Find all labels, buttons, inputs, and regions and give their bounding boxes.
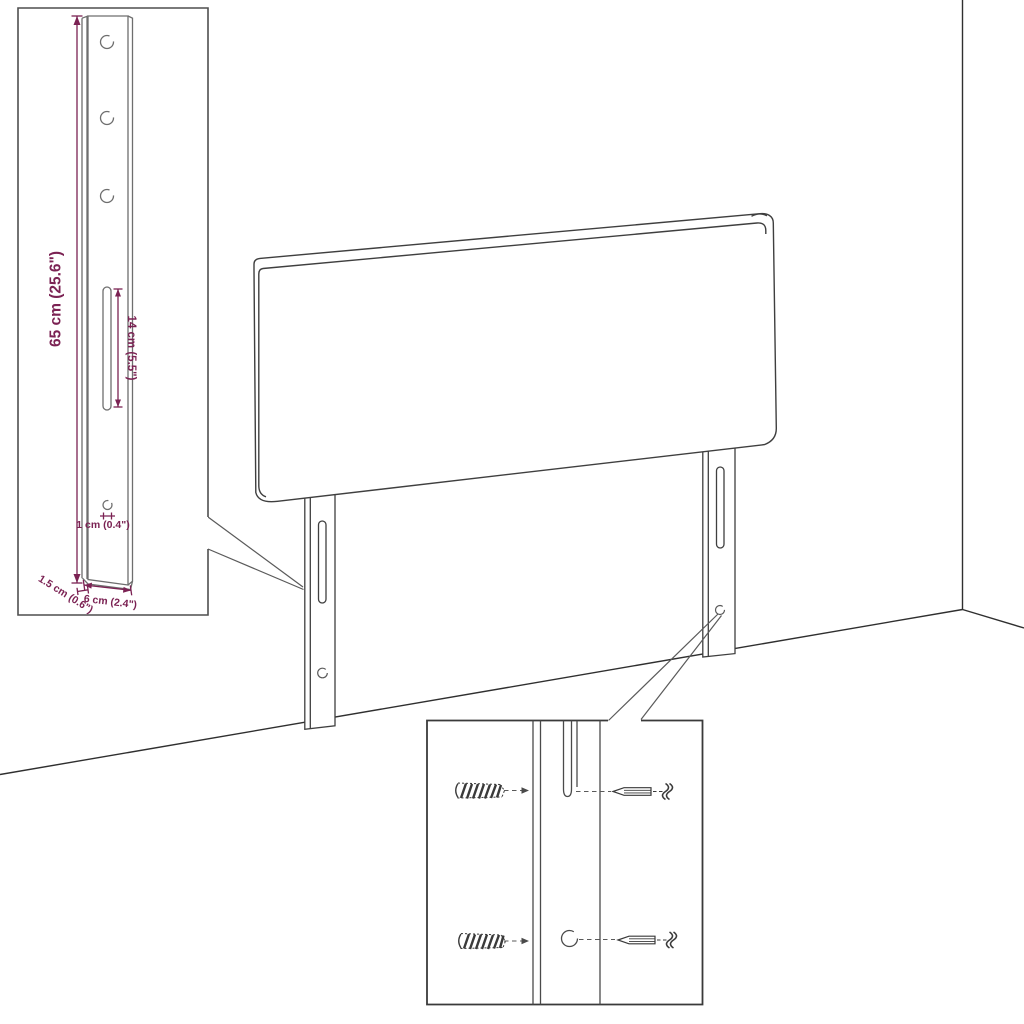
detail-box-fill [427, 721, 703, 1005]
inset-leader-lines [208, 517, 304, 590]
floor-line-right [963, 610, 1024, 629]
hardware-detail-inset [427, 721, 703, 1005]
inset-leg-face [88, 16, 128, 585]
label-leg-height: 65 cm (25.6") [48, 251, 65, 347]
right-leg-slot [717, 467, 725, 548]
inset-leg-drawing [82, 16, 133, 590]
right-leg-hole [716, 606, 725, 615]
inset-leader-lower [208, 549, 304, 590]
label-slot-length: 14 cm (5.5") [125, 316, 137, 381]
leg-dimension-inset: 65 cm (25.6") 14 cm (5.5") 1 cm (0.4") 1… [18, 8, 208, 616]
inset-leader-upper [208, 517, 303, 587]
label-hole-diameter: 1 cm (0.4") [76, 519, 129, 531]
panel-outline [254, 214, 776, 502]
diagram-canvas: 65 cm (25.6") 14 cm (5.5") 1 cm (0.4") 1… [0, 0, 1024, 1024]
left-leg-hole [318, 668, 328, 678]
headboard-diagram-svg: 65 cm (25.6") 14 cm (5.5") 1 cm (0.4") 1… [0, 0, 1024, 1024]
headboard-panel [254, 214, 776, 502]
detail-leader-right [641, 616, 722, 720]
left-leg-slot [319, 521, 327, 603]
headboard-left-leg [305, 467, 335, 729]
